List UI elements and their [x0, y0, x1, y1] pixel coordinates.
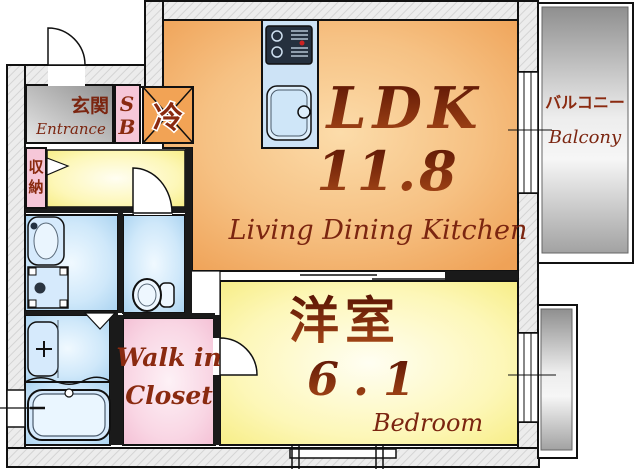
toilet-fixture	[133, 279, 174, 311]
wall-entry-column	[145, 1, 163, 87]
wall-right-middle	[518, 193, 538, 333]
wall-bottom	[7, 448, 539, 467]
kitchen-unit	[262, 20, 318, 148]
wall-right-lower	[518, 422, 538, 448]
washer-drain-icon	[35, 283, 46, 294]
wall-right-upper	[518, 1, 538, 72]
bathtub-fixture	[28, 389, 110, 440]
balcony-label: バルコニー	[545, 93, 625, 112]
wall-top	[145, 1, 538, 20]
stove-knob	[300, 41, 305, 46]
ldk-balcony-window	[518, 72, 538, 193]
entry-door-gap	[48, 66, 85, 86]
alcove-floor	[541, 309, 572, 450]
washer-pan-corner	[60, 300, 67, 307]
wall-hall-ldk	[185, 148, 192, 315]
bedroom-subtitle-label: Bedroom	[372, 409, 483, 437]
toilet-tank-icon	[160, 283, 174, 307]
entrance-label: 玄関	[71, 94, 109, 117]
wall-toilet-wic	[123, 313, 215, 318]
wall-wic-bedroom	[213, 315, 220, 445]
bedroom-south-window	[290, 449, 396, 458]
ldk-subtitle-label: Living Dining Kitchen	[228, 215, 528, 246]
entry-door-icon	[48, 28, 85, 65]
refrigerator-label: 冷	[153, 101, 183, 136]
wall-bath-wic	[110, 315, 123, 445]
kitchen-faucet-icon	[298, 106, 310, 118]
bedroom-size-label: 6.1	[307, 352, 429, 406]
shoebox-label-s: S	[120, 92, 134, 116]
floor-plan-drawing: LDK 11.8 Living Dining Kitchen 洋室 6.1 Be…	[0, 0, 640, 469]
wall-laundry-toilet	[118, 213, 123, 313]
storage-label-1: 収	[28, 158, 44, 176]
basin-faucet-icon	[31, 223, 38, 230]
entrance-subtitle-label: Entrance	[35, 120, 106, 138]
ldk-label: LDK	[324, 75, 483, 142]
washer-pan-corner	[29, 268, 36, 275]
floor-plan: LDK 11.8 Living Dining Kitchen 洋室 6.1 Be…	[0, 0, 640, 469]
wic-label-line2: Closet	[125, 381, 213, 410]
washer-pan-corner	[29, 300, 36, 307]
bathtub-inner	[33, 394, 105, 436]
corner-basin-bowl	[34, 223, 58, 259]
bedroom-window	[518, 333, 538, 422]
balcony-subtitle-label: Balcony	[548, 127, 622, 148]
vanity-fixture	[28, 320, 58, 378]
stove-icon	[266, 26, 312, 64]
wic-label-line1: Walk in	[116, 343, 221, 372]
bedroom-label: 洋室	[289, 292, 401, 350]
ldk-bedroom-wall-solid	[445, 271, 518, 281]
washer-pan-corner	[60, 268, 67, 275]
tub-overflow-icon	[65, 389, 73, 397]
balcony-alcove	[538, 305, 577, 458]
ldk-size-label: 11.8	[316, 139, 460, 203]
shoebox-label-b: B	[118, 115, 136, 139]
storage-label-2: 納	[28, 178, 43, 196]
